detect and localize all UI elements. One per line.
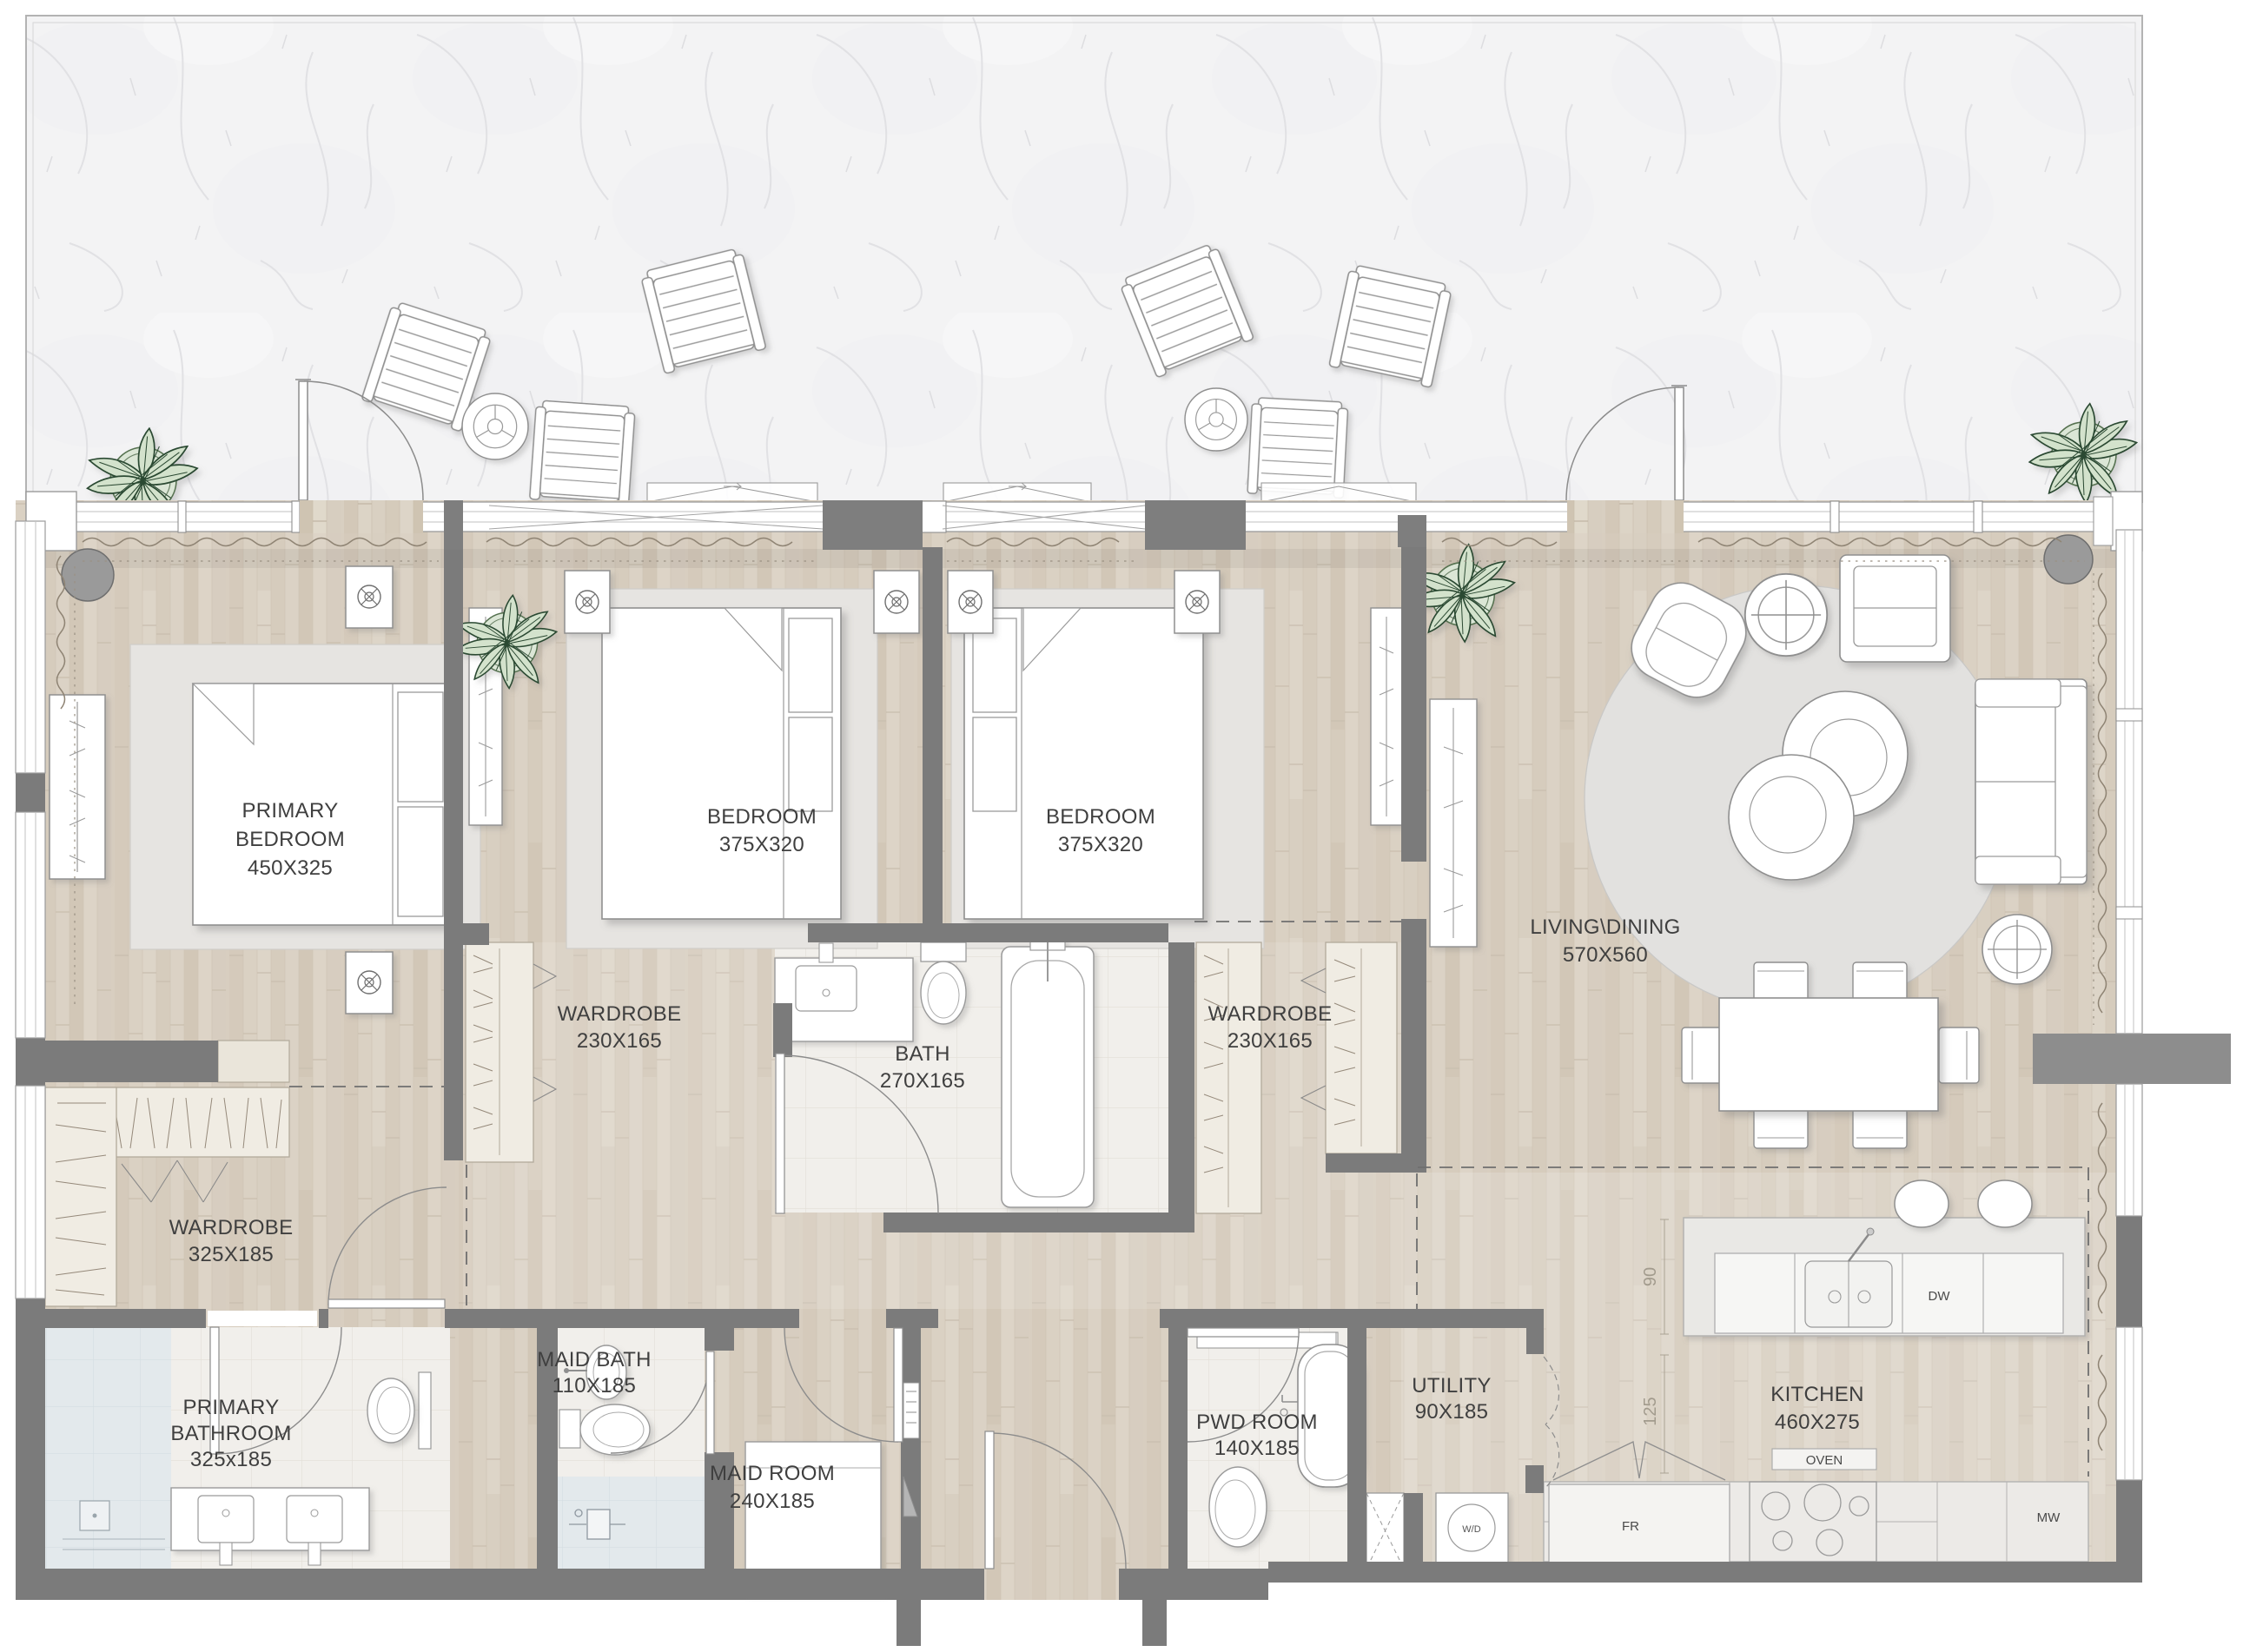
svg-text:325x185: 325x185 <box>190 1448 272 1471</box>
svg-text:BATHROOM: BATHROOM <box>170 1422 291 1445</box>
svg-text:MAID ROOM: MAID ROOM <box>710 1462 835 1485</box>
svg-text:LIVING\DINING: LIVING\DINING <box>1530 915 1680 939</box>
svg-text:DW: DW <box>1929 1289 1951 1304</box>
svg-text:375X320: 375X320 <box>1058 833 1143 856</box>
svg-text:BATH: BATH <box>895 1042 949 1066</box>
svg-text:KITCHEN: KITCHEN <box>1770 1383 1863 1406</box>
svg-text:MAID BATH: MAID BATH <box>537 1348 652 1371</box>
svg-text:WARDROBE: WARDROBE <box>558 1002 682 1026</box>
svg-text:BEDROOM: BEDROOM <box>235 828 345 851</box>
svg-text:230X165: 230X165 <box>577 1029 662 1053</box>
svg-text:BEDROOM: BEDROOM <box>1046 805 1155 829</box>
svg-text:125: 125 <box>1641 1397 1660 1425</box>
svg-text:270X165: 270X165 <box>880 1069 965 1093</box>
svg-text:570X560: 570X560 <box>1563 943 1648 967</box>
svg-text:460X275: 460X275 <box>1775 1411 1860 1434</box>
svg-text:325X185: 325X185 <box>189 1243 274 1266</box>
svg-text:240X185: 240X185 <box>730 1490 815 1513</box>
svg-text:FR: FR <box>1622 1519 1639 1534</box>
svg-text:450X325: 450X325 <box>248 856 333 880</box>
svg-text:90X185: 90X185 <box>1415 1400 1489 1424</box>
svg-text:OVEN: OVEN <box>1806 1453 1843 1468</box>
svg-text:WARDROBE: WARDROBE <box>1208 1002 1333 1026</box>
svg-text:PRIMARY: PRIMARY <box>182 1396 279 1419</box>
svg-text:140X185: 140X185 <box>1214 1437 1300 1460</box>
svg-text:90: 90 <box>1641 1267 1660 1286</box>
svg-text:110X185: 110X185 <box>552 1374 636 1398</box>
svg-text:375X320: 375X320 <box>719 833 804 856</box>
svg-text:230X165: 230X165 <box>1227 1029 1313 1053</box>
svg-text:W/D: W/D <box>1462 1524 1480 1535</box>
svg-text:MW: MW <box>2037 1510 2061 1525</box>
svg-text:BEDROOM: BEDROOM <box>707 805 817 829</box>
svg-text:UTILITY: UTILITY <box>1412 1374 1491 1398</box>
svg-text:PRIMARY: PRIMARY <box>242 799 338 823</box>
svg-text:PWD ROOM: PWD ROOM <box>1196 1411 1318 1434</box>
svg-text:WARDROBE: WARDROBE <box>169 1216 294 1239</box>
